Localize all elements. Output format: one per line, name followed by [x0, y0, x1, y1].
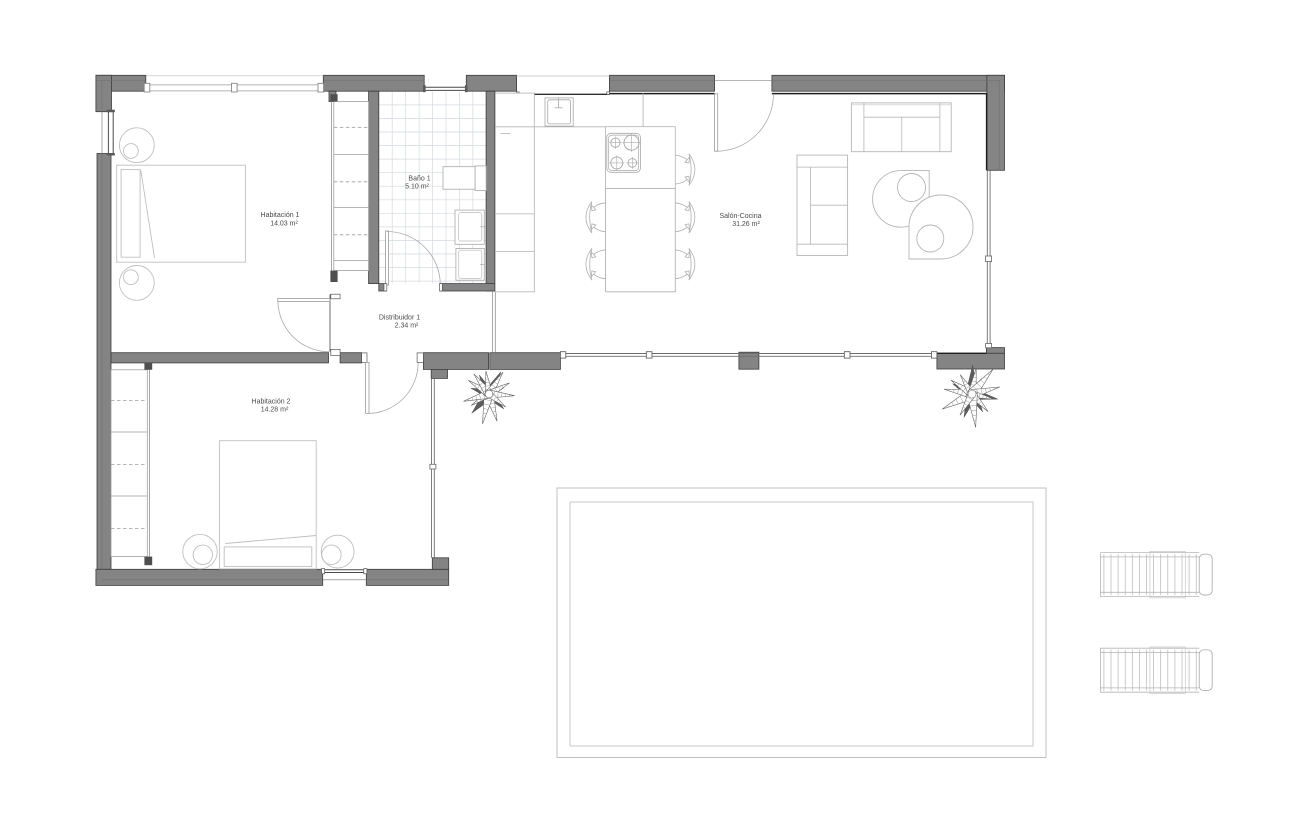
- svg-text:Baño 1: Baño 1: [408, 176, 430, 183]
- svg-text:31.26 m²: 31.26 m²: [732, 221, 760, 228]
- svg-text:5.10 m²: 5.10 m²: [405, 184, 429, 191]
- svg-text:14.28 m²: 14.28 m²: [261, 407, 289, 414]
- svg-text:2.34 m²: 2.34 m²: [395, 323, 419, 330]
- svg-text:Salón-Cocina: Salón-Cocina: [719, 213, 761, 220]
- svg-text:Habitación 1: Habitación 1: [261, 212, 300, 219]
- svg-text:Distribuidor 1: Distribuidor 1: [379, 315, 420, 322]
- svg-text:Habitación 2: Habitación 2: [252, 399, 291, 406]
- svg-text:14.03 m²: 14.03 m²: [270, 221, 298, 228]
